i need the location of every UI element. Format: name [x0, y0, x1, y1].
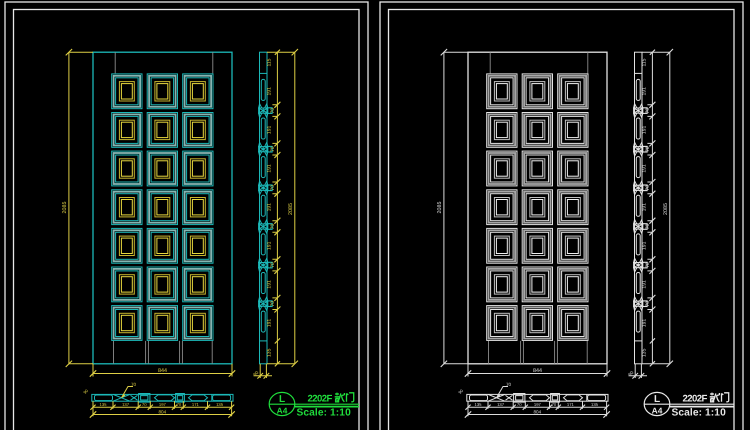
svg-text:137: 137 [497, 402, 505, 407]
svg-text:191: 191 [267, 241, 273, 250]
svg-text:844: 844 [533, 368, 542, 374]
svg-text:804: 804 [533, 409, 541, 414]
svg-text:L: L [654, 394, 660, 405]
svg-text:Scale: 1:10: Scale: 1:10 [297, 408, 352, 419]
svg-text:191: 191 [642, 280, 648, 289]
svg-text:A4: A4 [652, 406, 663, 416]
svg-text:A4: A4 [277, 406, 288, 416]
svg-text:135: 135 [100, 402, 108, 407]
svg-text:191: 191 [642, 241, 648, 250]
svg-text:70: 70 [645, 146, 651, 152]
svg-text:191: 191 [267, 203, 273, 212]
svg-text:70: 70 [552, 402, 557, 407]
svg-text:191: 191 [267, 164, 273, 173]
svg-text:191: 191 [642, 319, 648, 328]
svg-text:2202F: 2202F [683, 394, 708, 405]
svg-text:70: 70 [506, 382, 512, 387]
svg-text:115: 115 [267, 58, 273, 66]
svg-text:191: 191 [642, 87, 648, 96]
svg-text:2085: 2085 [663, 203, 669, 215]
svg-text:2202F: 2202F [308, 394, 333, 405]
svg-text:Scale: 1:10: Scale: 1:10 [672, 408, 727, 419]
svg-text:137: 137 [122, 402, 130, 407]
svg-text:115: 115 [642, 58, 648, 66]
svg-text:844: 844 [158, 368, 167, 374]
svg-text:70: 70 [177, 402, 182, 407]
svg-text:135: 135 [591, 402, 599, 407]
svg-text:191: 191 [267, 87, 273, 96]
svg-text:70: 70 [270, 224, 276, 230]
svg-text:70: 70 [270, 185, 276, 191]
svg-text:135: 135 [216, 402, 224, 407]
svg-text:70: 70 [645, 108, 651, 114]
svg-text:2085: 2085 [437, 202, 443, 214]
svg-text:135: 135 [267, 348, 273, 357]
svg-text:191: 191 [267, 280, 273, 289]
svg-text:70: 70 [517, 402, 522, 407]
svg-text:171: 171 [567, 402, 575, 407]
svg-text:70: 70 [131, 382, 137, 387]
svg-text:2085: 2085 [62, 202, 68, 214]
svg-text:197: 197 [534, 402, 542, 407]
svg-text:2085: 2085 [288, 203, 294, 215]
svg-text:191: 191 [642, 126, 648, 135]
svg-text:804: 804 [158, 409, 166, 414]
svg-text:70: 70 [645, 262, 651, 268]
svg-text:70: 70 [270, 262, 276, 268]
svg-text:135: 135 [475, 402, 483, 407]
svg-text:171: 171 [192, 402, 200, 407]
svg-text:135: 135 [642, 348, 648, 357]
svg-text:70: 70 [270, 301, 276, 307]
svg-text:70: 70 [645, 185, 651, 191]
svg-text:70: 70 [645, 224, 651, 230]
svg-text:70: 70 [645, 301, 651, 307]
svg-text:70: 70 [142, 402, 147, 407]
svg-text:191: 191 [642, 164, 648, 173]
svg-text:197: 197 [159, 402, 167, 407]
svg-text:70: 70 [270, 108, 276, 114]
svg-text:191: 191 [267, 319, 273, 328]
svg-text:L: L [279, 394, 285, 405]
svg-text:191: 191 [267, 126, 273, 135]
svg-text:191: 191 [642, 203, 648, 212]
svg-text:70: 70 [270, 146, 276, 152]
